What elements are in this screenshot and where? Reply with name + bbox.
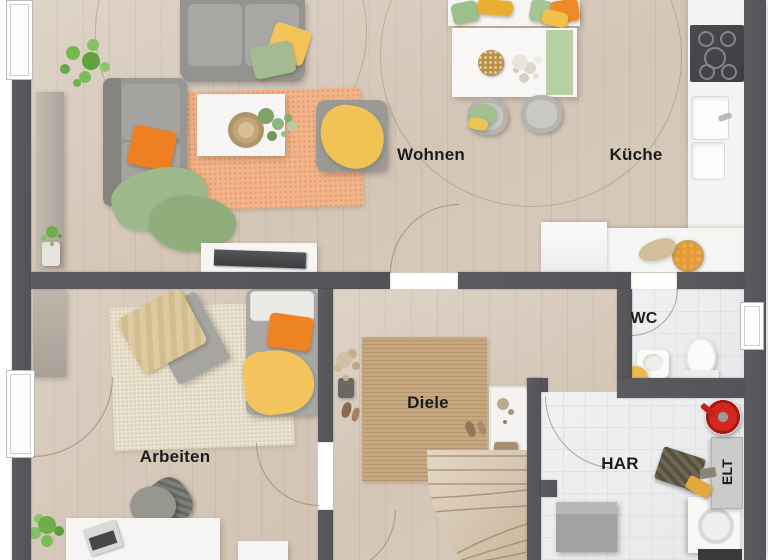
plant-fern [82,52,100,70]
label-elt: ELT [719,459,735,485]
wall-left [12,0,31,560]
table-runner [546,30,573,95]
appliance-base [698,549,742,560]
table-plant [258,108,274,124]
burner [698,31,714,47]
label-har: HAR [601,454,638,474]
plant-small [46,226,58,238]
wall-wc-bottom [617,378,744,398]
pillow-orange [266,312,314,352]
wall-right [744,0,766,560]
label-wc: WC [630,310,657,328]
pampas-grass [336,352,352,368]
wall-middle-east [677,272,744,289]
stairs [427,450,527,560]
french-door-left [6,370,35,458]
label-arbeiten: Arbeiten [140,447,211,467]
window-top-left [6,0,33,80]
label-wohnen: Wohnen [397,145,465,165]
hose-reel-red [705,399,741,435]
kitchen-cabinet [541,222,607,272]
wall-middle-west [31,272,390,289]
wall-har-left [527,378,541,560]
plant-desk [38,516,56,534]
tv [214,249,307,268]
toilet [686,338,716,374]
flowers-white [512,54,528,70]
sofa-cushion [188,4,242,66]
burner [699,64,715,80]
frame-decor [497,398,509,410]
label-diele: Diele [407,393,449,413]
wall-arbeiten-diele-lower [318,510,333,560]
vase [338,378,354,398]
fruit-bowl [672,240,704,272]
burner [721,64,737,80]
washbasin-bowl [643,354,663,371]
utility-unit-top [556,502,617,514]
window-wc [740,302,764,350]
food-bowl [478,50,504,76]
floor-plan: ELT Wohnen Küche Arbeiten Diele WC HAR [0,0,768,560]
cabinet-low [238,541,288,560]
wall-pier [541,480,557,497]
washing-machine-door [698,508,734,544]
wall-arbeiten-diele-upper [318,289,333,442]
wardrobe [33,289,66,377]
dining-chair [521,95,562,133]
pillow-mustard [477,0,514,16]
label-kueche: Küche [610,145,663,165]
plant-pot [42,242,60,266]
wall-middle-center [458,272,631,289]
toilet-tank [683,370,719,378]
burner [720,31,736,47]
sink-basin [691,142,725,180]
wall-wc-left [617,289,632,378]
